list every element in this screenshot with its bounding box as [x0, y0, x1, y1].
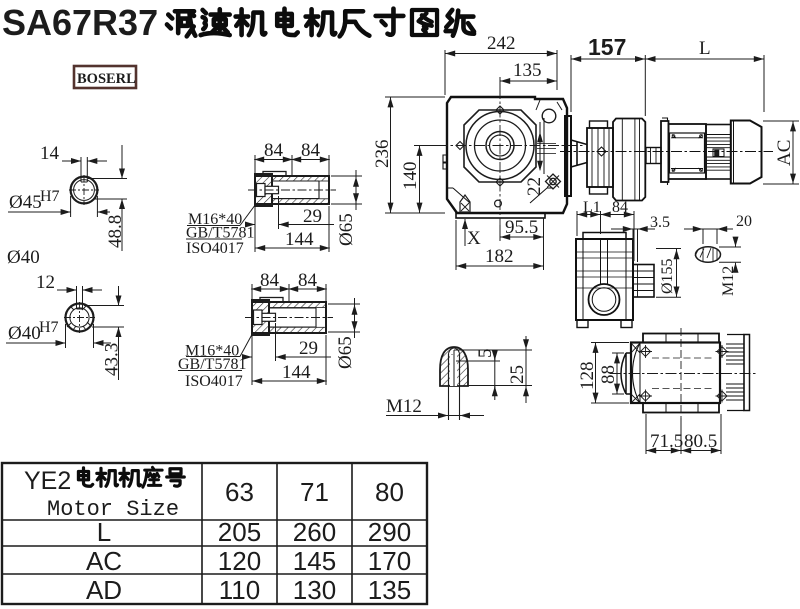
svg-text:110: 110 — [219, 575, 260, 605]
svg-text:Ø40: Ø40 — [7, 247, 40, 268]
svg-text:29: 29 — [299, 338, 318, 359]
svg-text:182: 182 — [485, 246, 514, 267]
svg-text:AC: AC — [774, 140, 795, 166]
svg-text:48.8: 48.8 — [105, 215, 126, 248]
svg-text:YE2: YE2 — [24, 467, 71, 495]
svg-text:236: 236 — [372, 140, 393, 169]
svg-text:80.5: 80.5 — [684, 431, 717, 452]
svg-text:242: 242 — [487, 33, 516, 54]
svg-text:Ø65: Ø65 — [335, 336, 356, 369]
svg-text:95.5: 95.5 — [505, 217, 538, 238]
svg-text:Ø65: Ø65 — [336, 213, 357, 246]
svg-text:25: 25 — [507, 365, 528, 384]
svg-text:GB/T5781: GB/T5781 — [178, 356, 246, 373]
svg-text:144: 144 — [282, 362, 311, 383]
svg-text:X: X — [467, 228, 481, 249]
svg-text:80: 80 — [375, 477, 404, 507]
svg-text:Motor Size: Motor Size — [47, 497, 179, 522]
svg-text:M12: M12 — [720, 266, 737, 296]
svg-text:63: 63 — [225, 477, 254, 507]
svg-text:H7: H7 — [39, 319, 59, 336]
svg-text:135: 135 — [513, 60, 542, 81]
svg-text:84: 84 — [612, 199, 628, 216]
svg-text:12: 12 — [36, 272, 55, 293]
svg-text:84: 84 — [264, 140, 284, 161]
svg-text:128: 128 — [577, 362, 598, 391]
svg-text:ISO4017: ISO4017 — [185, 373, 243, 390]
svg-text:170: 170 — [368, 546, 411, 576]
svg-text:120: 120 — [218, 546, 261, 576]
svg-text:22: 22 — [524, 177, 545, 196]
svg-text:84: 84 — [260, 270, 280, 291]
svg-text:M12: M12 — [386, 396, 422, 417]
svg-text:L1: L1 — [583, 199, 601, 216]
svg-text:260: 260 — [293, 517, 336, 547]
svg-text:140: 140 — [400, 162, 421, 191]
svg-text:130: 130 — [293, 575, 336, 605]
svg-text:145: 145 — [293, 546, 336, 576]
svg-text:3.5: 3.5 — [650, 214, 670, 231]
svg-text:SA67R37: SA67R37 — [2, 2, 158, 43]
svg-text:88: 88 — [598, 365, 619, 384]
svg-text:Ø155: Ø155 — [659, 258, 676, 294]
svg-text:GB/T5781: GB/T5781 — [186, 225, 254, 242]
svg-text:5: 5 — [475, 349, 496, 359]
svg-text:135: 135 — [368, 575, 411, 605]
svg-text:L: L — [699, 38, 711, 59]
svg-text:Ø40: Ø40 — [8, 323, 41, 344]
svg-text:84: 84 — [298, 270, 318, 291]
svg-text:71.5: 71.5 — [650, 431, 683, 452]
svg-text:L: L — [97, 517, 111, 547]
svg-text:29: 29 — [303, 206, 322, 227]
svg-text:290: 290 — [368, 517, 411, 547]
svg-text:71: 71 — [300, 477, 329, 507]
svg-text:144: 144 — [285, 229, 314, 250]
svg-text:AC: AC — [86, 546, 122, 576]
svg-text:ISO4017: ISO4017 — [186, 240, 244, 257]
svg-text:157: 157 — [588, 34, 626, 60]
svg-text:AD: AD — [86, 575, 122, 605]
svg-text:84: 84 — [301, 140, 321, 161]
svg-text:20: 20 — [736, 213, 752, 230]
svg-text:BOSERL: BOSERL — [77, 71, 136, 87]
svg-text:43.3: 43.3 — [102, 343, 123, 376]
svg-text:14: 14 — [40, 143, 60, 164]
svg-text:Ø45: Ø45 — [9, 192, 42, 213]
svg-text:205: 205 — [218, 517, 261, 547]
svg-text:H7: H7 — [40, 188, 60, 205]
